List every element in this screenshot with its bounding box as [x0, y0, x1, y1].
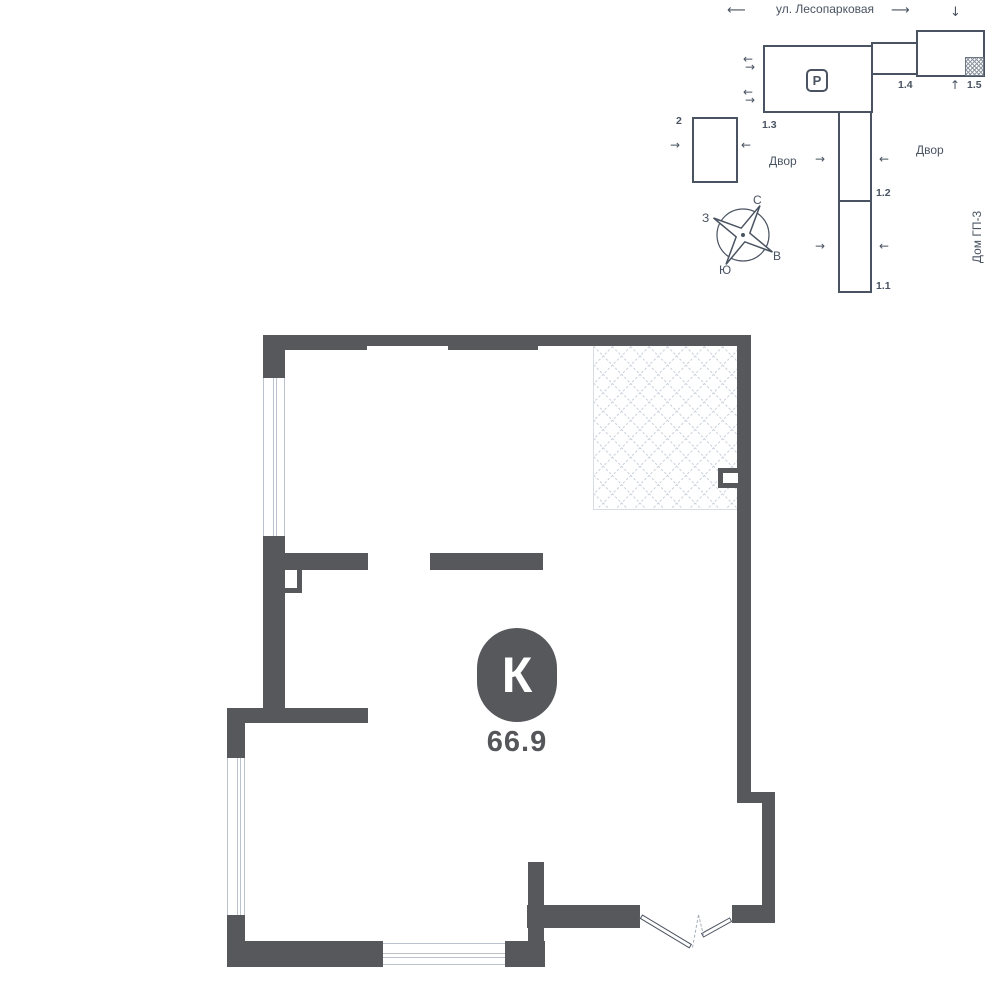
interior-wall	[284, 553, 368, 570]
window	[383, 943, 505, 965]
house-gp3-label: Дом ГП-3	[971, 201, 985, 273]
building-label-1-4: 1.4	[898, 80, 913, 91]
strip-entry-arrow-left-icon: ←	[879, 153, 889, 165]
compass-south-label: Ю	[719, 264, 731, 277]
compass-east-label: В	[773, 250, 781, 263]
courtyard-left-label: Двор	[769, 155, 797, 168]
strip-entry-arrow-left-icon: ←	[879, 240, 889, 252]
wall-segment	[505, 941, 545, 967]
current-unit-location-marker	[965, 57, 984, 76]
entry-arrow-down-icon: ↓	[950, 6, 961, 19]
street-arrow-right-icon: ⟶	[891, 4, 910, 17]
unit-type-badge: К	[477, 628, 557, 722]
shaft-niche-wall	[285, 588, 302, 593]
wall-segment	[227, 941, 383, 967]
street-label: ул. Лесопарковая	[762, 3, 888, 16]
window	[263, 378, 285, 536]
wall-segment	[538, 335, 751, 346]
strip-entry-arrow-right-icon: →	[815, 153, 825, 165]
street-arrow-left-icon: ⟵	[727, 4, 746, 17]
window	[227, 758, 245, 915]
building-label-2: 2	[676, 116, 682, 127]
wall-segment	[737, 335, 751, 792]
parking-entry-arrow-right-icon: →	[745, 61, 755, 73]
door-leaf	[701, 917, 732, 937]
wall-segment	[227, 708, 368, 723]
building-label-1-3: 1.3	[762, 120, 777, 131]
wall-segment	[737, 792, 775, 803]
interior-wall	[430, 553, 543, 570]
loggia-hatched-area	[593, 346, 738, 510]
wall-segment	[448, 335, 538, 350]
strip-section-divider	[838, 200, 872, 202]
wall-segment	[528, 862, 544, 942]
wall-segment	[263, 335, 285, 378]
building-label-1-1: 1.1	[876, 281, 891, 292]
door-swing-dash	[692, 915, 699, 948]
building-2-arrow-right-icon: →	[670, 139, 680, 151]
door-leaf	[640, 914, 692, 948]
courtyard-right-label: Двор	[916, 144, 944, 157]
wall-segment	[263, 536, 285, 708]
compass-north-label: С	[753, 194, 762, 207]
unit-area-label: 66.9	[455, 726, 579, 759]
building-strip-1-1-1-2	[838, 111, 872, 293]
building-1-4	[871, 42, 918, 75]
building-2	[692, 117, 738, 183]
strip-entry-arrow-right-icon: →	[815, 240, 825, 252]
parking-entry-arrow-right-icon: →	[745, 94, 755, 106]
building-label-1-5: 1.5	[967, 80, 982, 91]
wall-segment	[227, 915, 245, 967]
entry-arrow-up-icon: ↑	[950, 79, 960, 91]
compass-west-label: З	[702, 212, 709, 225]
floorplan-page: ⟵ ул. Лесопарковая ⟶ Р 1.3 ← → ← → 1.4 1…	[0, 0, 1000, 1000]
wall-segment	[227, 723, 245, 758]
parking-icon: Р	[806, 69, 828, 92]
vent-duct	[718, 468, 738, 488]
building-2-arrow-left-icon: ←	[741, 139, 751, 151]
wall-segment	[732, 905, 775, 923]
compass-rose-icon	[699, 190, 787, 282]
building-label-1-2: 1.2	[876, 188, 891, 199]
wall-segment	[367, 335, 448, 346]
